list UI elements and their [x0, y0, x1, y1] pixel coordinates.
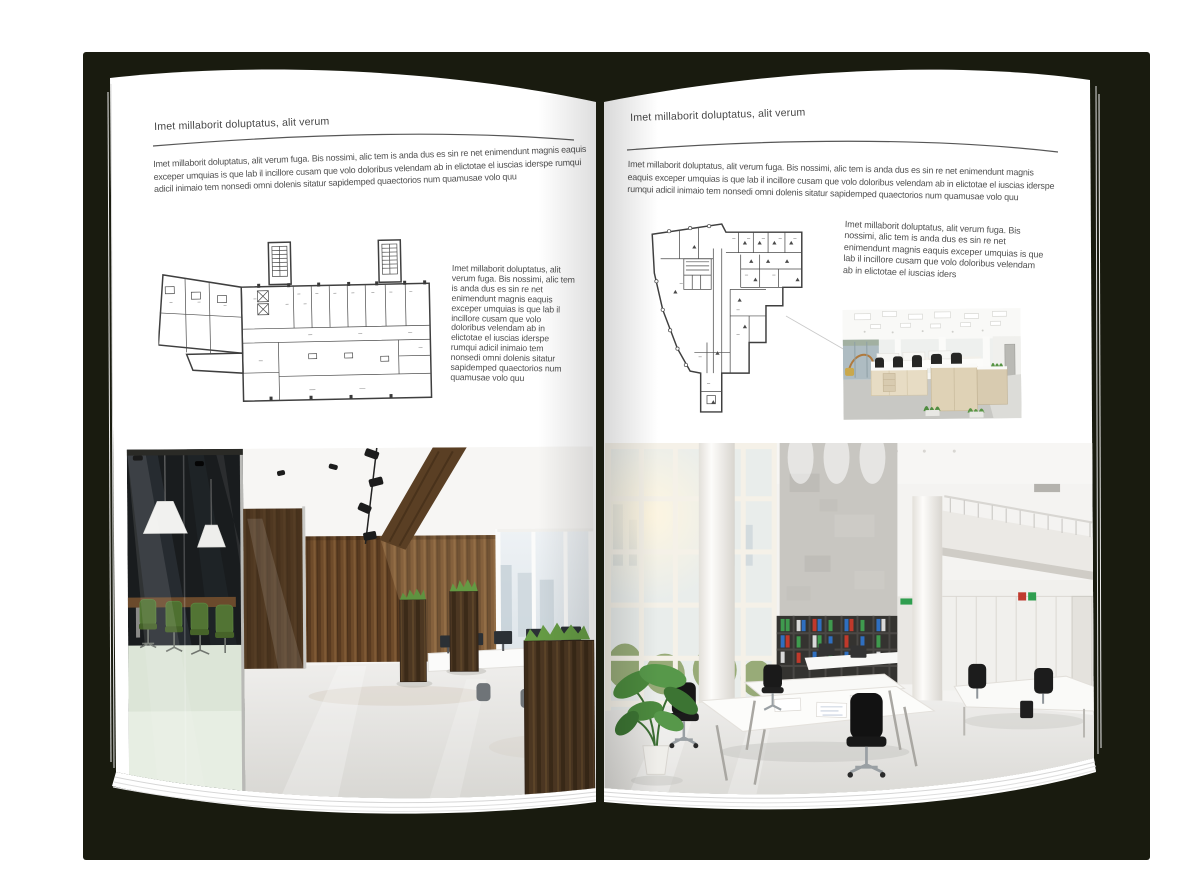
- right-page: [604, 70, 1094, 794]
- book-cover-backdrop: [0, 0, 1200, 891]
- book-mockup: Imet millaborit doluptatus, alit verum I…: [0, 0, 1200, 891]
- left-page: [110, 70, 596, 799]
